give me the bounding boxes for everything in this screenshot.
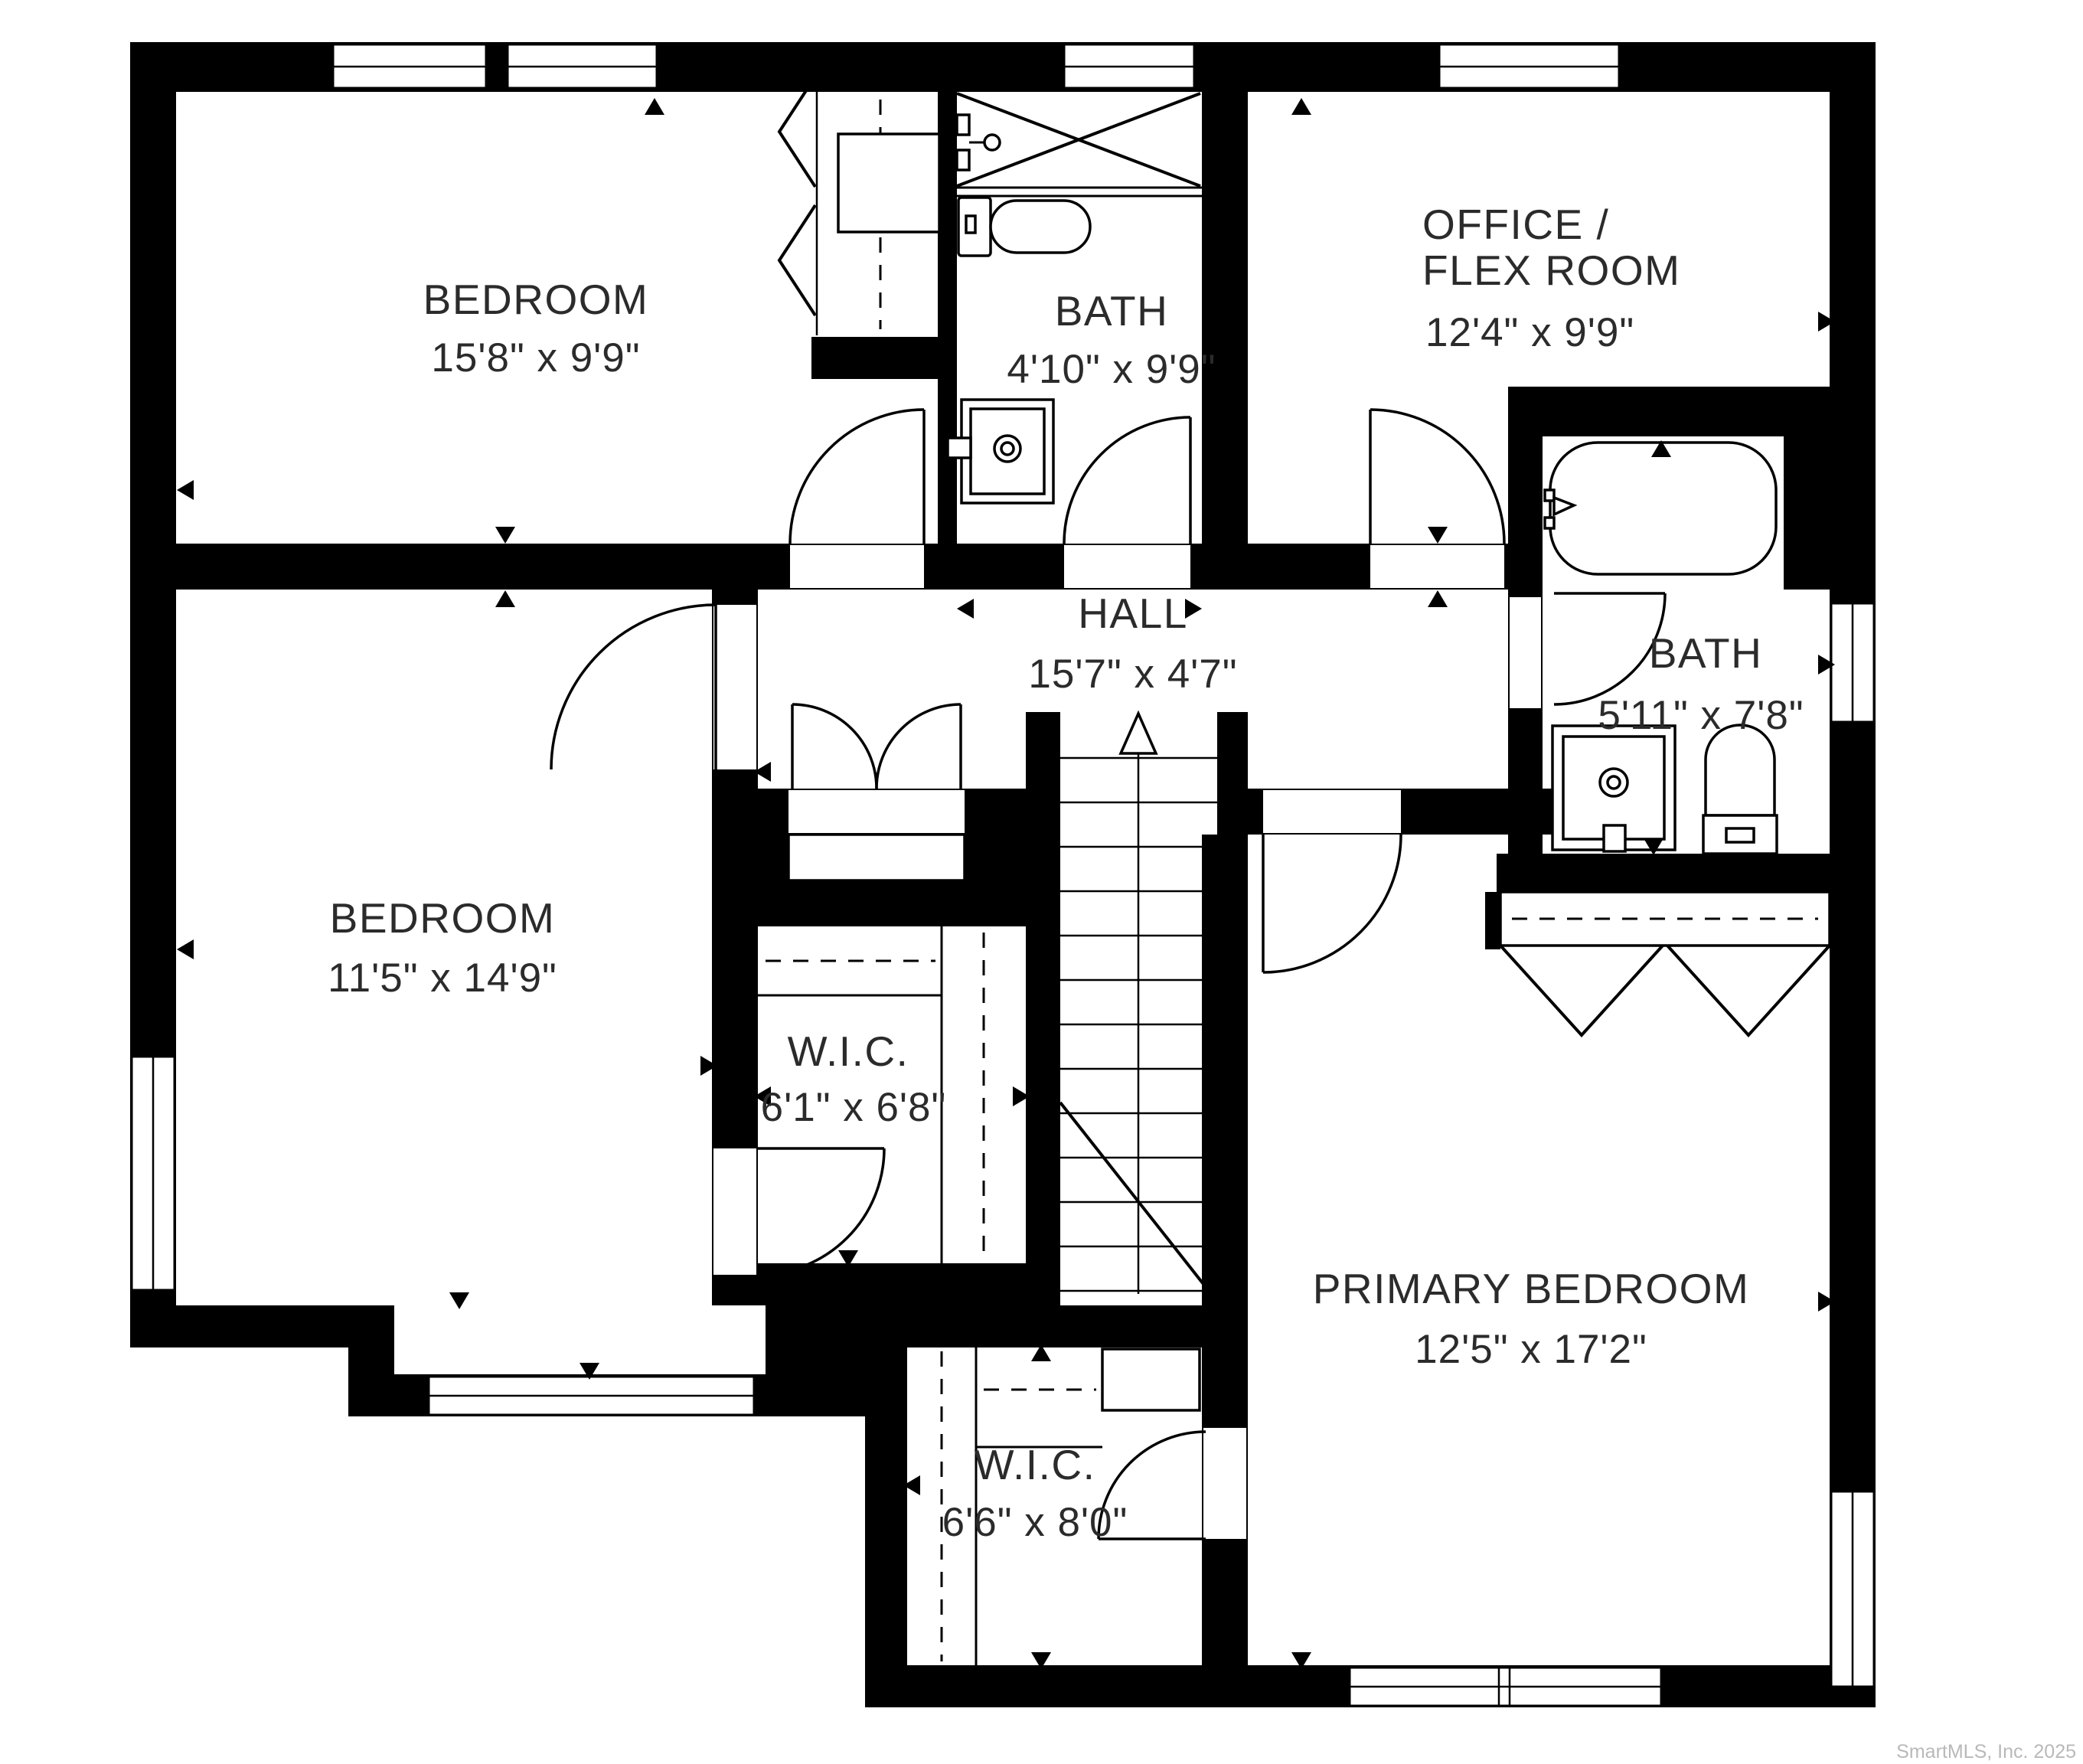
room-dims: 5'11" x 7'8" bbox=[1598, 693, 1804, 738]
room-label: HALL bbox=[1078, 590, 1188, 637]
room-label: W.I.C. bbox=[975, 1441, 1096, 1488]
window bbox=[1831, 1491, 1874, 1687]
room-label: PRIMARY BEDROOM bbox=[1313, 1265, 1750, 1312]
window bbox=[1831, 603, 1874, 722]
door-opening bbox=[1370, 545, 1504, 588]
wall-segment bbox=[1026, 712, 1060, 1305]
wall-segment bbox=[758, 880, 1026, 926]
room-label: W.I.C. bbox=[788, 1027, 909, 1075]
room-label: BEDROOM bbox=[423, 276, 649, 323]
wall-segment bbox=[1508, 387, 1876, 436]
wall-segment bbox=[865, 1305, 907, 1707]
sink-vanity bbox=[948, 400, 1053, 503]
sink-vanity bbox=[1552, 726, 1675, 851]
toilet bbox=[958, 198, 1090, 256]
room-dims: 12'5" x 17'2" bbox=[1415, 1327, 1647, 1372]
door-opening bbox=[1203, 1428, 1246, 1539]
room-dims: 11'5" x 14'9" bbox=[328, 955, 557, 1001]
wall-segment bbox=[1217, 712, 1248, 835]
room-label: FLEX ROOM bbox=[1422, 247, 1680, 294]
window bbox=[1439, 44, 1619, 88]
room-dims: 4'10" x 9'9" bbox=[1007, 347, 1216, 392]
door-opening bbox=[713, 1148, 756, 1275]
window bbox=[333, 44, 486, 88]
door-opening bbox=[788, 790, 965, 833]
wall-segment bbox=[811, 337, 938, 379]
floor-plan: BEDROOM 15'8" x 9'9" BATH 4'10" x 9'9" O… bbox=[0, 0, 2083, 1764]
room-dims: 6'1" x 6'8" bbox=[761, 1085, 947, 1130]
room-label: BATH bbox=[1649, 629, 1763, 677]
door-opening bbox=[713, 605, 756, 769]
bathtub bbox=[1545, 443, 1776, 574]
toilet bbox=[1703, 725, 1777, 854]
window bbox=[429, 1377, 754, 1415]
room-label: OFFICE / bbox=[1422, 201, 1609, 248]
door-opening bbox=[1263, 790, 1401, 833]
room-dims: 15'7" x 4'7" bbox=[1028, 652, 1237, 697]
wall-segment bbox=[907, 1305, 1248, 1347]
wall-segment bbox=[1830, 42, 1876, 1707]
closet-shelf-hall bbox=[788, 835, 965, 880]
room-label: BATH bbox=[1055, 287, 1169, 335]
wall-segment bbox=[1485, 892, 1500, 949]
wall-segment bbox=[1497, 854, 1830, 892]
wall-segment bbox=[1202, 835, 1248, 1707]
door-opening bbox=[1064, 545, 1190, 588]
watermark: SmartMLS, Inc. 2025 bbox=[1896, 1741, 2076, 1762]
room-label: BEDROOM bbox=[330, 894, 556, 942]
window bbox=[508, 44, 657, 88]
wall-segment bbox=[712, 1263, 1026, 1305]
window bbox=[1064, 44, 1194, 88]
room-dims: 12'4" x 9'9" bbox=[1425, 310, 1634, 355]
wall-segment bbox=[1784, 436, 1876, 590]
wall-segment bbox=[1202, 42, 1248, 590]
door-opening bbox=[1510, 597, 1541, 708]
wall-segment bbox=[965, 835, 1026, 880]
door-opening bbox=[790, 545, 924, 588]
room-dims: 6'6" x 8'0" bbox=[942, 1500, 1128, 1545]
window bbox=[1350, 1668, 1661, 1706]
room-dims: 15'8" x 9'9" bbox=[431, 335, 640, 381]
window bbox=[132, 1057, 175, 1290]
